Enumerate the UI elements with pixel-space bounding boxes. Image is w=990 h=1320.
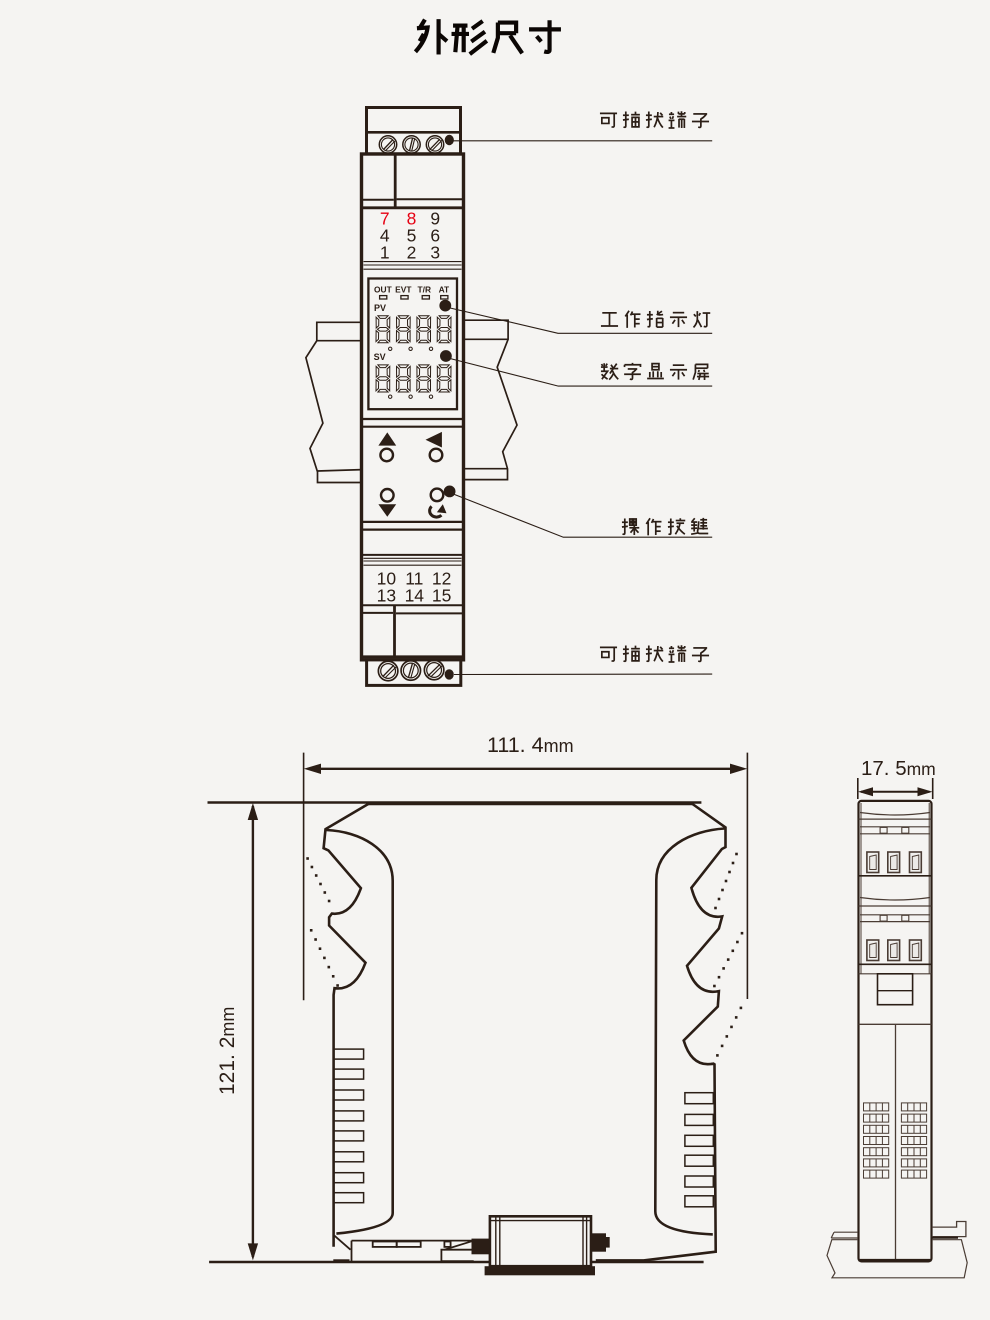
svg-text:EVT: EVT xyxy=(395,285,412,295)
svg-text:PV: PV xyxy=(374,303,386,313)
svg-text:T/R: T/R xyxy=(418,285,432,295)
svg-text:13: 13 xyxy=(377,586,396,606)
svg-text:14: 14 xyxy=(405,586,425,606)
svg-text:SV: SV xyxy=(374,352,386,362)
svg-text:111. 4mm: 111. 4mm xyxy=(487,733,574,757)
svg-text:3: 3 xyxy=(430,242,440,262)
svg-text:17. 5mm: 17. 5mm xyxy=(861,757,936,780)
svg-text:OUT: OUT xyxy=(374,285,393,295)
svg-text:15: 15 xyxy=(432,586,451,606)
svg-text:2: 2 xyxy=(407,242,417,262)
svg-text:1: 1 xyxy=(380,242,390,262)
svg-text:121. 2mm: 121. 2mm xyxy=(216,1007,239,1095)
svg-text:AT: AT xyxy=(439,285,450,295)
